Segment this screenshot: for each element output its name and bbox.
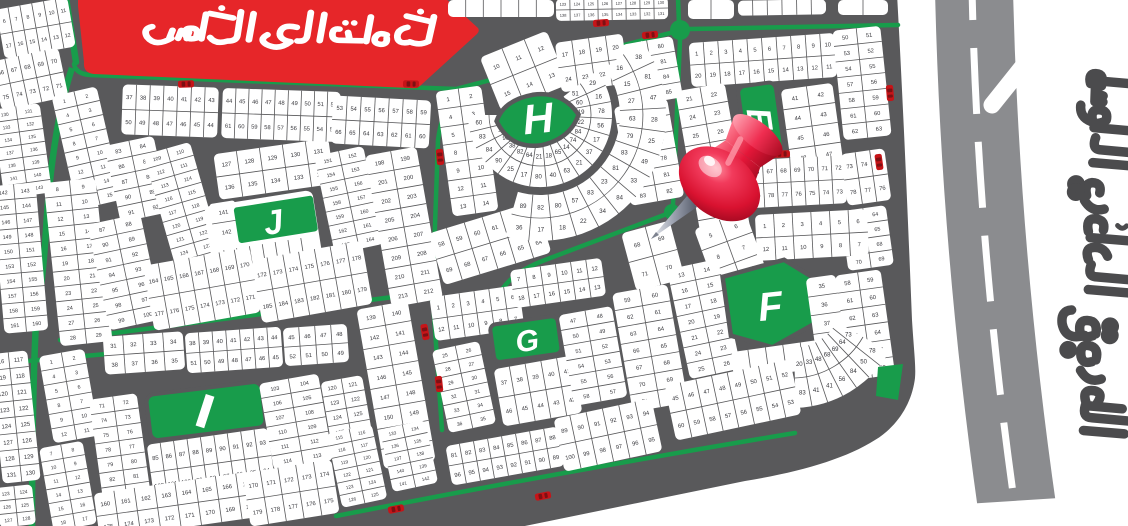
svg-text:123: 123 xyxy=(560,2,568,7)
svg-text:78: 78 xyxy=(768,193,775,199)
svg-text:98: 98 xyxy=(115,302,122,309)
svg-text:33: 33 xyxy=(630,179,637,185)
svg-text:63: 63 xyxy=(563,168,570,174)
svg-text:17: 17 xyxy=(537,228,544,234)
svg-text:2: 2 xyxy=(782,223,786,229)
svg-text:88: 88 xyxy=(125,221,132,228)
svg-text:25: 25 xyxy=(692,133,699,140)
svg-text:38: 38 xyxy=(509,144,516,150)
svg-text:41: 41 xyxy=(813,388,820,394)
svg-text:42: 42 xyxy=(817,92,824,99)
svg-text:50: 50 xyxy=(860,359,867,365)
svg-text:67: 67 xyxy=(766,169,773,175)
svg-text:63: 63 xyxy=(872,312,879,319)
svg-text:68: 68 xyxy=(876,241,883,248)
svg-text:15: 15 xyxy=(59,231,66,238)
svg-text:51: 51 xyxy=(866,33,873,40)
svg-text:10: 10 xyxy=(81,199,88,206)
svg-text:58: 58 xyxy=(848,98,855,105)
svg-text:5: 5 xyxy=(838,220,842,226)
svg-text:74: 74 xyxy=(823,190,831,196)
svg-text:97: 97 xyxy=(141,297,148,304)
svg-text:53: 53 xyxy=(604,359,611,366)
svg-text:78: 78 xyxy=(850,190,857,197)
svg-text:13: 13 xyxy=(460,204,467,211)
svg-text:56: 56 xyxy=(871,79,878,86)
svg-text:93: 93 xyxy=(496,465,503,472)
svg-text:19: 19 xyxy=(62,261,69,268)
svg-text:16: 16 xyxy=(17,41,24,48)
svg-text:16: 16 xyxy=(753,69,760,75)
svg-text:78: 78 xyxy=(105,447,112,454)
svg-text:16: 16 xyxy=(616,66,623,72)
svg-text:57: 57 xyxy=(277,125,284,131)
svg-text:35: 35 xyxy=(171,358,178,364)
svg-text:65: 65 xyxy=(660,343,667,350)
svg-text:21: 21 xyxy=(536,154,543,160)
svg-text:89: 89 xyxy=(552,455,559,462)
svg-text:18: 18 xyxy=(724,71,731,77)
svg-text:127: 127 xyxy=(3,440,13,447)
svg-text:129: 129 xyxy=(644,0,652,5)
svg-text:64: 64 xyxy=(872,212,879,219)
svg-text:56: 56 xyxy=(378,108,385,114)
svg-text:82: 82 xyxy=(537,205,544,211)
svg-text:160: 160 xyxy=(32,321,41,328)
svg-text:49: 49 xyxy=(599,329,606,336)
svg-text:82: 82 xyxy=(666,188,673,195)
svg-text:80: 80 xyxy=(131,459,138,466)
svg-text:90: 90 xyxy=(219,446,226,453)
svg-text:66: 66 xyxy=(633,348,640,355)
svg-text:41: 41 xyxy=(791,96,798,103)
svg-text:63: 63 xyxy=(629,117,636,123)
svg-text:48: 48 xyxy=(596,313,603,320)
svg-text:138: 138 xyxy=(560,13,568,18)
svg-text:61: 61 xyxy=(850,113,857,120)
svg-text:117: 117 xyxy=(14,357,24,364)
svg-text:71: 71 xyxy=(821,166,828,172)
svg-text:37: 37 xyxy=(131,361,138,367)
svg-text:11: 11 xyxy=(576,268,583,275)
svg-text:12: 12 xyxy=(763,247,770,253)
svg-text:130: 130 xyxy=(25,470,35,477)
svg-text:59: 59 xyxy=(624,297,631,304)
svg-text:8: 8 xyxy=(56,187,60,193)
svg-text:2: 2 xyxy=(710,51,714,57)
svg-text:92: 92 xyxy=(510,462,517,469)
svg-text:18: 18 xyxy=(518,295,525,302)
svg-text:71: 71 xyxy=(99,403,106,410)
svg-text:46: 46 xyxy=(304,334,311,340)
svg-text:127: 127 xyxy=(616,1,624,6)
svg-text:18: 18 xyxy=(578,49,585,56)
svg-text:49: 49 xyxy=(337,351,344,357)
svg-text:65: 65 xyxy=(555,150,562,156)
svg-text:54: 54 xyxy=(845,66,852,73)
svg-text:60: 60 xyxy=(238,124,245,130)
svg-text:17: 17 xyxy=(562,52,569,59)
svg-text:10: 10 xyxy=(468,323,475,330)
svg-text:28: 28 xyxy=(70,335,77,342)
svg-text:63: 63 xyxy=(876,126,883,133)
svg-text:25: 25 xyxy=(648,139,655,145)
svg-text:64: 64 xyxy=(526,153,533,159)
svg-text:36: 36 xyxy=(821,302,828,309)
svg-text:78: 78 xyxy=(660,155,667,162)
svg-text:89: 89 xyxy=(128,236,135,243)
svg-text:155: 155 xyxy=(28,277,37,284)
svg-text:38: 38 xyxy=(516,377,523,384)
svg-text:48: 48 xyxy=(815,357,822,363)
svg-text:58: 58 xyxy=(583,394,590,401)
svg-text:69: 69 xyxy=(794,168,801,174)
svg-text:78: 78 xyxy=(598,109,605,115)
svg-text:13: 13 xyxy=(594,285,601,292)
svg-text:21: 21 xyxy=(89,273,96,280)
svg-text:12: 12 xyxy=(457,186,464,193)
svg-text:88: 88 xyxy=(549,435,556,442)
svg-text:57: 57 xyxy=(610,389,617,396)
svg-text:9: 9 xyxy=(811,43,815,49)
svg-text:152: 152 xyxy=(27,262,36,269)
svg-text:45: 45 xyxy=(194,122,201,128)
svg-text:11: 11 xyxy=(826,64,832,70)
svg-text:38: 38 xyxy=(140,96,147,102)
svg-text:93: 93 xyxy=(135,267,142,274)
svg-text:33: 33 xyxy=(806,360,813,366)
svg-text:8: 8 xyxy=(797,44,801,50)
svg-text:50: 50 xyxy=(321,352,328,358)
svg-text:59: 59 xyxy=(867,277,874,284)
svg-text:73: 73 xyxy=(836,189,843,195)
svg-text:57: 57 xyxy=(572,199,579,205)
svg-text:81: 81 xyxy=(663,172,670,179)
svg-text:149: 149 xyxy=(3,234,12,241)
svg-text:158: 158 xyxy=(9,308,18,315)
svg-text:43: 43 xyxy=(208,98,215,104)
svg-text:47: 47 xyxy=(265,100,272,106)
svg-text:123: 123 xyxy=(1,491,10,498)
svg-text:46: 46 xyxy=(505,408,512,415)
svg-text:1: 1 xyxy=(763,224,767,230)
svg-text:59: 59 xyxy=(872,95,879,102)
svg-text:44: 44 xyxy=(207,123,214,129)
svg-text:95: 95 xyxy=(468,470,475,477)
svg-text:12: 12 xyxy=(438,327,445,334)
svg-text:84: 84 xyxy=(575,129,582,135)
svg-text:93: 93 xyxy=(259,440,266,447)
svg-text:29: 29 xyxy=(96,332,103,339)
svg-text:137: 137 xyxy=(574,12,582,17)
svg-text:45: 45 xyxy=(288,335,295,341)
svg-text:11: 11 xyxy=(782,246,788,252)
svg-text:159: 159 xyxy=(31,306,40,313)
svg-text:47: 47 xyxy=(650,96,657,102)
svg-text:56: 56 xyxy=(839,377,846,383)
svg-text:154: 154 xyxy=(6,279,15,286)
svg-text:40: 40 xyxy=(548,372,555,379)
svg-text:85: 85 xyxy=(507,442,514,449)
svg-text:87: 87 xyxy=(535,438,542,445)
svg-text:26: 26 xyxy=(94,318,101,325)
svg-text:60: 60 xyxy=(419,134,426,140)
svg-text:23: 23 xyxy=(65,291,72,298)
svg-text:129: 129 xyxy=(24,454,34,461)
svg-text:87: 87 xyxy=(179,452,186,459)
svg-text:90: 90 xyxy=(125,194,132,201)
svg-text:84: 84 xyxy=(486,147,493,153)
svg-text:63: 63 xyxy=(630,331,637,338)
svg-text:49: 49 xyxy=(218,359,225,365)
svg-text:77: 77 xyxy=(864,188,871,195)
svg-text:81: 81 xyxy=(645,75,652,81)
svg-text:61: 61 xyxy=(846,298,853,305)
svg-text:92: 92 xyxy=(246,442,253,449)
svg-text:60: 60 xyxy=(576,101,583,107)
svg-text:10: 10 xyxy=(800,245,807,251)
svg-text:37: 37 xyxy=(126,95,133,101)
svg-text:133: 133 xyxy=(630,11,638,16)
svg-text:51: 51 xyxy=(575,348,582,355)
svg-text:20: 20 xyxy=(63,276,70,283)
svg-text:116: 116 xyxy=(0,359,5,366)
svg-text:119: 119 xyxy=(0,375,6,382)
svg-text:7: 7 xyxy=(858,242,862,248)
svg-text:123: 123 xyxy=(0,408,10,415)
svg-text:37: 37 xyxy=(500,380,507,387)
svg-text:16: 16 xyxy=(595,94,602,100)
svg-text:61: 61 xyxy=(405,133,412,139)
svg-text:55: 55 xyxy=(364,107,371,113)
svg-text:60: 60 xyxy=(651,293,658,300)
svg-text:58: 58 xyxy=(264,125,271,131)
svg-text:134: 134 xyxy=(616,12,624,17)
svg-text:73: 73 xyxy=(846,164,853,171)
svg-text:10: 10 xyxy=(561,270,568,277)
svg-text:42: 42 xyxy=(244,337,251,343)
svg-text:64: 64 xyxy=(839,340,846,346)
svg-text:67: 67 xyxy=(636,365,643,372)
svg-text:91: 91 xyxy=(232,444,239,451)
svg-text:8: 8 xyxy=(839,243,843,249)
svg-text:65: 65 xyxy=(349,130,356,136)
svg-text:6: 6 xyxy=(768,47,772,53)
svg-text:58: 58 xyxy=(406,109,413,115)
svg-text:51: 51 xyxy=(572,92,579,98)
svg-text:59: 59 xyxy=(251,125,258,131)
svg-text:62: 62 xyxy=(852,129,859,136)
svg-text:17: 17 xyxy=(5,43,12,50)
svg-text:81: 81 xyxy=(133,473,140,480)
svg-text:70: 70 xyxy=(855,259,862,266)
svg-text:72: 72 xyxy=(122,400,129,407)
svg-text:121: 121 xyxy=(17,389,27,396)
svg-text:174: 174 xyxy=(124,521,135,526)
svg-text:77: 77 xyxy=(781,192,788,198)
svg-text:72: 72 xyxy=(835,165,842,171)
svg-text:44: 44 xyxy=(226,99,233,105)
svg-text:130: 130 xyxy=(658,0,666,5)
svg-text:39: 39 xyxy=(532,374,539,381)
svg-text:28: 28 xyxy=(651,118,658,124)
svg-text:120: 120 xyxy=(0,391,8,398)
svg-text:53: 53 xyxy=(336,106,343,112)
svg-text:82: 82 xyxy=(109,477,116,484)
svg-text:31: 31 xyxy=(110,343,117,349)
svg-text:40: 40 xyxy=(216,339,223,345)
svg-text:9: 9 xyxy=(820,244,824,250)
svg-text:76: 76 xyxy=(795,192,802,198)
svg-text:53: 53 xyxy=(843,51,850,58)
svg-text:48: 48 xyxy=(278,100,285,106)
svg-text:87: 87 xyxy=(99,227,106,234)
svg-text:23: 23 xyxy=(714,110,721,117)
svg-text:91: 91 xyxy=(105,257,112,264)
svg-text:51: 51 xyxy=(317,102,324,108)
svg-text:38: 38 xyxy=(189,341,196,347)
svg-text:84: 84 xyxy=(616,195,623,201)
svg-text:56: 56 xyxy=(607,374,614,381)
svg-text:16: 16 xyxy=(548,291,555,298)
svg-text:124: 124 xyxy=(1,424,12,431)
svg-text:20: 20 xyxy=(796,362,803,368)
svg-text:46: 46 xyxy=(252,100,259,106)
svg-text:23: 23 xyxy=(601,179,608,185)
svg-text:124: 124 xyxy=(19,489,28,496)
svg-text:60: 60 xyxy=(476,120,483,126)
svg-text:12: 12 xyxy=(61,432,68,439)
svg-text:78: 78 xyxy=(869,348,876,354)
svg-text:26: 26 xyxy=(717,129,724,136)
svg-text:83: 83 xyxy=(639,193,646,200)
svg-text:142: 142 xyxy=(0,190,8,197)
svg-text:73: 73 xyxy=(125,414,132,421)
svg-text:70: 70 xyxy=(639,382,646,389)
svg-text:135: 135 xyxy=(602,12,610,17)
svg-text:83: 83 xyxy=(587,190,594,196)
svg-text:150: 150 xyxy=(4,249,13,256)
svg-text:96: 96 xyxy=(454,472,461,479)
svg-text:95: 95 xyxy=(112,287,119,294)
svg-text:49: 49 xyxy=(139,121,146,127)
svg-text:18: 18 xyxy=(545,153,552,159)
svg-text:47: 47 xyxy=(320,333,327,339)
svg-text:46: 46 xyxy=(180,122,187,128)
svg-text:126: 126 xyxy=(3,504,12,511)
svg-text:61: 61 xyxy=(654,309,661,316)
svg-text:12: 12 xyxy=(811,65,818,71)
svg-text:15: 15 xyxy=(624,82,631,88)
svg-text:50: 50 xyxy=(572,333,579,340)
svg-text:153: 153 xyxy=(5,264,14,271)
svg-text:11: 11 xyxy=(453,325,460,332)
svg-text:19: 19 xyxy=(595,47,602,54)
svg-text:58: 58 xyxy=(844,281,851,288)
svg-text:63: 63 xyxy=(377,132,384,138)
svg-text:17: 17 xyxy=(593,137,600,143)
svg-text:94: 94 xyxy=(108,272,115,279)
svg-text:52: 52 xyxy=(602,344,609,351)
svg-text:90: 90 xyxy=(538,457,545,464)
svg-text:54: 54 xyxy=(350,106,358,112)
svg-text:85: 85 xyxy=(665,89,672,96)
svg-text:42: 42 xyxy=(194,97,201,103)
svg-text:132: 132 xyxy=(644,11,652,16)
svg-text:20: 20 xyxy=(695,73,702,79)
svg-text:43: 43 xyxy=(553,400,560,407)
svg-text:146: 146 xyxy=(1,220,10,227)
svg-text:29: 29 xyxy=(589,81,596,87)
svg-text:76: 76 xyxy=(127,429,134,436)
svg-text:118: 118 xyxy=(15,373,25,380)
svg-text:68: 68 xyxy=(824,353,831,359)
svg-text:20: 20 xyxy=(612,45,619,52)
svg-text:126: 126 xyxy=(22,438,32,445)
svg-text:56: 56 xyxy=(597,123,604,129)
svg-text:48: 48 xyxy=(153,121,160,127)
svg-text:22: 22 xyxy=(577,120,584,126)
svg-text:88: 88 xyxy=(192,450,199,457)
svg-text:38: 38 xyxy=(635,55,642,61)
svg-text:13: 13 xyxy=(797,66,804,72)
svg-text:131: 131 xyxy=(658,11,666,16)
svg-text:11: 11 xyxy=(60,8,67,15)
svg-text:48: 48 xyxy=(231,358,238,364)
svg-text:80: 80 xyxy=(657,43,664,50)
svg-text:50: 50 xyxy=(304,101,311,107)
svg-text:13: 13 xyxy=(83,214,90,221)
svg-text:62: 62 xyxy=(849,316,856,323)
svg-text:14: 14 xyxy=(41,37,48,44)
svg-text:64: 64 xyxy=(363,131,371,137)
svg-text:45: 45 xyxy=(272,355,279,361)
svg-text:14: 14 xyxy=(563,145,570,151)
svg-text:9: 9 xyxy=(81,184,85,190)
svg-text:27: 27 xyxy=(68,320,75,327)
svg-text:147: 147 xyxy=(23,218,32,225)
svg-text:61: 61 xyxy=(225,124,232,130)
svg-text:66: 66 xyxy=(335,130,342,136)
svg-text:10: 10 xyxy=(81,413,88,420)
svg-text:96: 96 xyxy=(138,282,145,289)
svg-text:55: 55 xyxy=(303,126,310,132)
svg-text:18: 18 xyxy=(88,258,95,265)
svg-text:50: 50 xyxy=(125,120,132,126)
svg-text:59: 59 xyxy=(420,110,427,116)
svg-text:84: 84 xyxy=(663,74,670,81)
svg-text:151: 151 xyxy=(26,247,35,254)
svg-text:17: 17 xyxy=(533,293,540,300)
svg-text:76: 76 xyxy=(879,185,886,192)
svg-text:86: 86 xyxy=(521,440,528,447)
svg-text:83: 83 xyxy=(115,148,122,155)
svg-text:34: 34 xyxy=(170,339,178,345)
svg-text:62: 62 xyxy=(391,133,398,139)
svg-text:83: 83 xyxy=(479,447,486,454)
svg-text:131: 131 xyxy=(6,472,16,479)
svg-text:47: 47 xyxy=(570,318,577,325)
svg-text:128: 128 xyxy=(22,516,31,523)
svg-text:80: 80 xyxy=(535,175,542,181)
svg-text:48: 48 xyxy=(336,332,343,338)
svg-text:37: 37 xyxy=(824,321,831,328)
svg-text:40: 40 xyxy=(550,173,557,179)
svg-text:145: 145 xyxy=(0,205,9,212)
svg-text:84: 84 xyxy=(139,143,146,150)
svg-text:45: 45 xyxy=(239,99,246,105)
svg-text:15: 15 xyxy=(768,68,775,74)
